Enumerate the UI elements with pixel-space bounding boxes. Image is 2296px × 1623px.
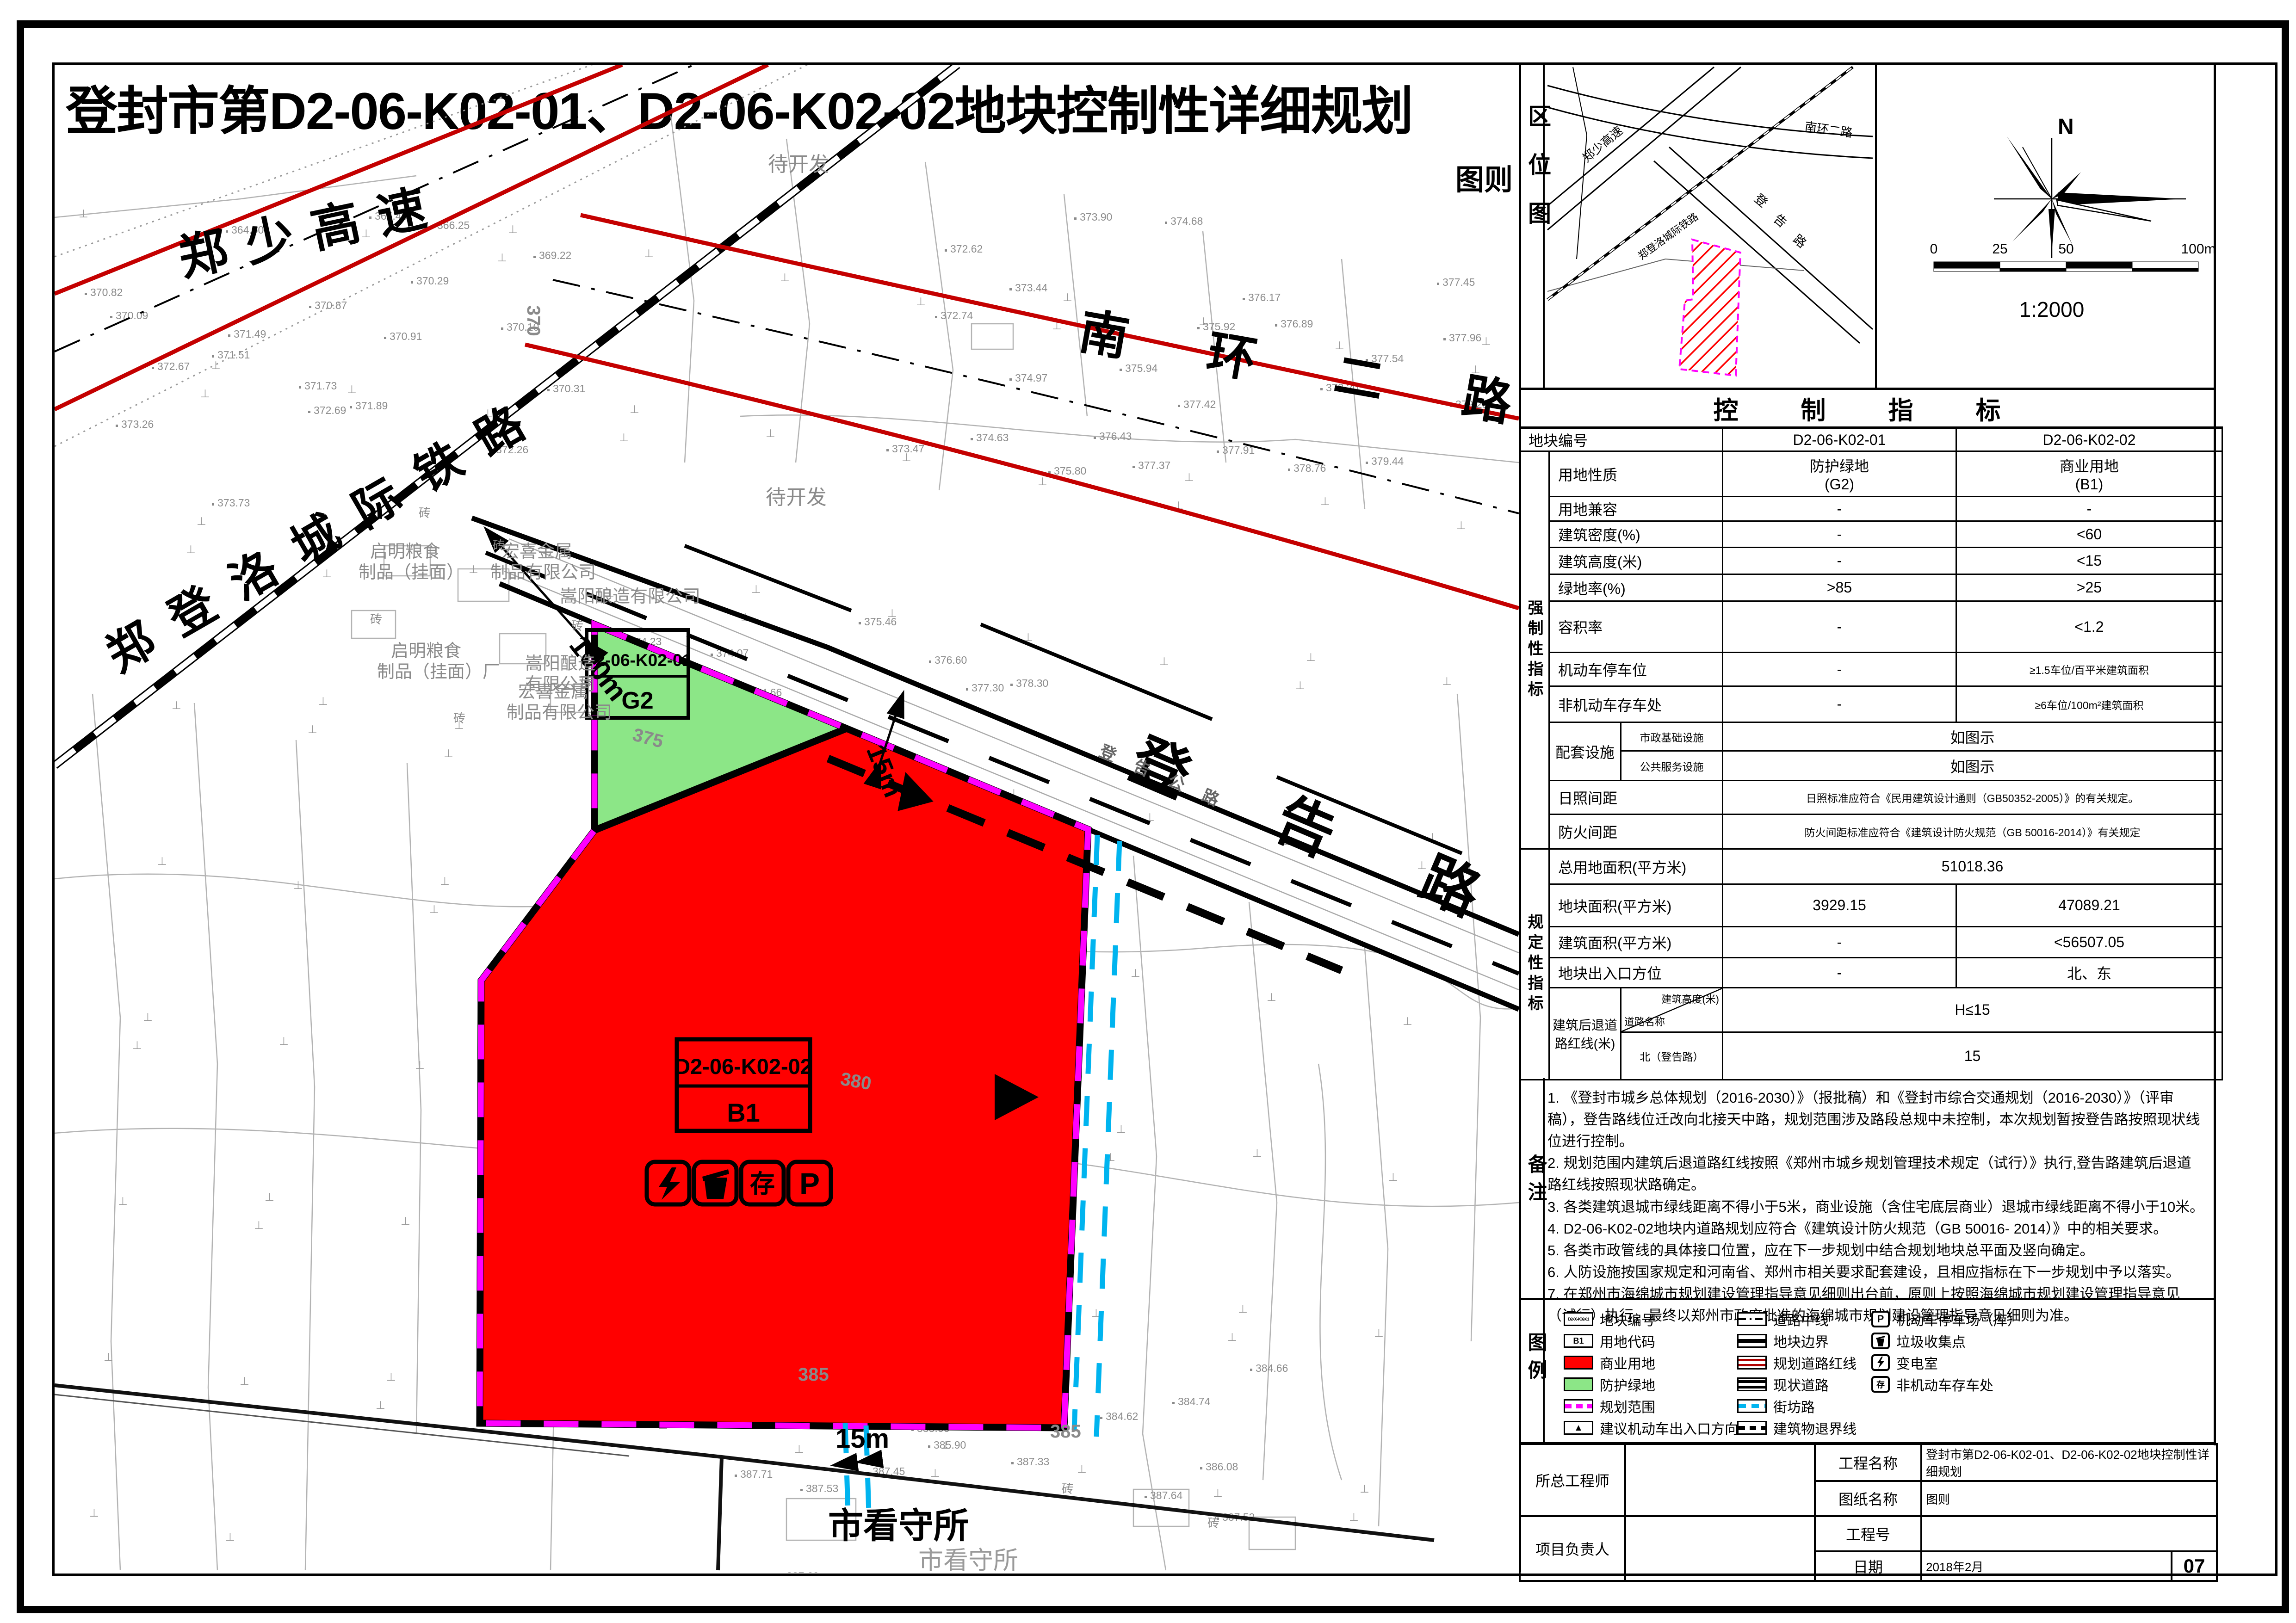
dimension-label: 15m [835,1424,889,1454]
elevation-label: 377.30 [972,682,1004,694]
elevation-label: 370.87 [315,299,347,311]
legend-item: P机动车停车场（库） [1871,1311,2021,1327]
legend-item-label: 非机动车存车处 [1896,1374,1993,1395]
entrance-direction-swatch: ▲ [1564,1421,1593,1435]
elevation-label: 387.64 [1150,1489,1183,1501]
elevation-label: 371.89 [355,400,388,412]
svg-text:⊥: ⊥ [1131,967,1140,980]
elevation-label: 384.62 [1106,1410,1138,1422]
svg-text:⊥: ⊥ [1306,651,1316,664]
road-name-label: 高 [306,195,365,258]
green-belt-swatch [1564,1377,1593,1391]
legend-item: 道路中线 [1737,1311,1857,1327]
svg-text:⊥: ⊥ [751,583,761,596]
note-item: 4. D2-06-K02-02地块内道路规划应符合《建筑设计防火规范（GB 50… [1547,1218,2204,1240]
inset-road-label: 路 [1790,232,1809,251]
svg-text:⊥: ⊥ [1388,1171,1398,1184]
legend-item-label: 机动车停车场（库） [1896,1309,2021,1329]
road-name-label: 少 [240,209,299,272]
elevation-label: 370.82 [90,286,123,298]
note-item: 3. 各类建筑退城市绿线距离不得小于5米，商业设施（含住宅底层商业）退城市绿线距… [1547,1196,2204,1218]
elevation-label: 376.89 [1281,318,1313,330]
svg-text:⊥: ⊥ [415,1059,425,1072]
legend-item: 垃圾收集点 [1871,1333,2021,1349]
brick-label: 砖 [1207,1516,1219,1530]
road-name-label: 路 [1458,369,1516,432]
svg-text:⊥: ⊥ [930,1467,940,1480]
elevation-label: 373.47 [892,443,924,455]
svg-text:⊥: ⊥ [322,568,332,580]
legend-item: D2-06-K02-01地块编号 [1564,1311,1739,1327]
elevation-label: 372.62 [950,243,983,255]
brick-label: 砖 [370,612,382,626]
notes-title: 备注 [1522,1154,1550,1210]
elevation-label: 370.29 [416,275,449,287]
location-inset-map: 南环二路郑少高速郑登洛城际铁路登告路 N 0 25 [1545,66,2214,387]
commercial-land-swatch [1564,1356,1593,1370]
elevation-label: 377.42 [1183,398,1216,410]
legend-item-label: 变电室 [1896,1352,1938,1373]
svg-text:⊥: ⊥ [279,1035,289,1048]
note-item: 6. 人防设施按国家规定和河南省、郑州市相关要求配套建设，且相应指标在下一步规划… [1547,1261,2204,1283]
bicycle-storage-icon: 存 [1871,1376,1890,1393]
svg-text:⊥: ⊥ [200,388,210,400]
elevation-label: 371.73 [304,380,337,392]
garbage-point-icon [1871,1333,1890,1349]
elevation-label: 376.60 [934,654,967,666]
place-label: 待开发 [768,153,829,176]
plot-code-2: D2-06-K02-02 [1956,428,2222,451]
brick-label: 砖 [493,538,505,552]
svg-text:100m: 100m [2181,241,2214,257]
use-code-swatch: B1 [1564,1334,1593,1348]
svg-text:⊥: ⊥ [1360,1483,1369,1495]
svg-text:⊥: ⊥ [508,223,518,236]
svg-text:⊥: ⊥ [197,515,206,528]
svg-text:⊥: ⊥ [644,247,654,260]
place-label: 制品（挂面）厂 [377,662,500,682]
legend-col-2: 道路中线地块边界规划道路红线现状道路街坊路建筑物退界线 [1737,1311,1857,1436]
brick-label: 砖 [1062,1482,1074,1496]
svg-text:⊥: ⊥ [225,1531,235,1543]
road-nanhuan-er [525,215,1519,608]
planning-scope-swatch [1564,1399,1593,1413]
svg-text:⊥: ⊥ [186,543,196,556]
svg-text:⊥: ⊥ [1267,991,1276,1004]
block-road-swatch [1737,1399,1767,1413]
road-name-label: 城 [283,506,349,574]
svg-text:⊥: ⊥ [265,1191,274,1203]
elevation-label: 374.68 [1170,215,1203,227]
project-name-value: 登封市第D2-06-K02-01、D2-06-K02-02地块控制性详细规划 [1921,1444,2217,1481]
contour-label: 385 [1050,1421,1081,1442]
legend-item-label: 防护绿地 [1600,1374,1655,1395]
parcels [480,624,1342,1428]
contour-label: 370 [523,305,544,336]
title-block: 所总工程师 工程名称 登封市第D2-06-K02-01、D2-06-K02-02… [1519,1443,2218,1582]
svg-text:⊥: ⊥ [1159,655,1169,668]
svg-text:⊥: ⊥ [1320,495,1330,508]
brick-label: 砖 [419,506,431,520]
svg-text:⊥: ⊥ [916,296,926,308]
inset-road-label: 南环二路 [1804,119,1853,140]
note-item: 5. 各类市政管线的具体接口位置，应在下一步规划中结合规划地块总平面及竖向确定。 [1547,1240,2204,1261]
north-rose-icon: N [1994,115,2186,258]
contour-label: 385 [798,1364,829,1385]
legend-item-label: 地块编号 [1600,1309,1655,1329]
elevation-label: 370.31 [553,383,585,395]
plot-number-swatch: D2-06-K02-01 [1564,1312,1593,1326]
main-map: ⊥⊥⊥⊥⊥⊥⊥⊥⊥⊥⊥⊥⊥⊥⊥⊥⊥⊥⊥⊥⊥⊥⊥⊥⊥⊥⊥⊥⊥⊥⊥⊥⊥⊥⊥⊥⊥⊥⊥⊥… [55,65,1519,1573]
elevation-label: 371.49 [234,328,266,340]
svg-text:0: 0 [1930,241,1938,257]
legend-item: 地块边界 [1737,1333,1857,1349]
elevation-label: 387.71 [740,1468,773,1480]
legend-col-1: D2-06-K02-01地块编号B1用地代码商业用地防护绿地规划范围▲建议机动车… [1564,1311,1739,1436]
elevation-label: 377.37 [1138,459,1170,471]
elevation-label: 369.22 [539,249,571,261]
legend-item-label: 街坊路 [1773,1396,1815,1416]
elevation-label: 387.69 [786,1570,819,1573]
elevation-label: 384.74 [1178,1395,1211,1407]
svg-text:⊥: ⊥ [1063,291,1072,304]
project-name-label: 工程名称 [1815,1444,1921,1481]
road-name-label: 郑 [98,614,164,682]
legend-item: B1用地代码 [1564,1333,1739,1349]
place-label: 制品有限公司 [490,563,596,582]
svg-text:⊥: ⊥ [318,695,328,708]
road-name-label: 郑 [174,223,233,286]
elevation-label: 372.74 [941,309,973,321]
place-label: 嵩阳酿造有限公司 [560,587,700,606]
svg-text:P: P [799,1166,820,1201]
svg-text:⊥: ⊥ [172,699,181,712]
svg-text:⊥: ⊥ [1252,1147,1262,1160]
place-label: 制品有限公司 [507,703,612,722]
elevation-label: 375.46 [864,616,897,628]
building-setback-swatch [1737,1421,1767,1435]
svg-text:⊥: ⊥ [780,272,790,284]
svg-text:⊥: ⊥ [1116,1123,1126,1135]
legend-item: 现状道路 [1737,1376,1857,1392]
control-indicator-table: 控 制 指 标 地块编号 D2-06-K02-01 D2-06-K02-02 强… [1519,389,2223,1080]
elevation-label: 387.53 [806,1482,838,1494]
road-centerline-swatch [1737,1312,1767,1326]
legend-item-label: 建议机动车出入口方向 [1600,1418,1739,1438]
road-name-label: 环 [1203,326,1261,388]
legend-item: ▲建议机动车出入口方向 [1564,1420,1739,1436]
legend-title: 图例 [1522,1332,1550,1388]
elevation-label: 385.90 [934,1439,966,1451]
svg-text:⊥: ⊥ [429,903,439,916]
elevation-label: 378.30 [1016,677,1048,689]
svg-text:25: 25 [1992,241,2007,257]
place-label: 制品（挂面） [359,563,464,582]
svg-text:⊥: ⊥ [211,359,221,372]
road-name-label: 南 [1075,304,1133,366]
group-mandatory: 强制性指标 [1523,599,1546,701]
road-name-label: 路 [1199,786,1222,810]
svg-text:⊥: ⊥ [1417,859,1427,872]
legend-item: 防护绿地 [1564,1376,1739,1392]
trash-icon [1875,1335,1886,1347]
date-value: 2018年2月 [1921,1551,2172,1581]
highway-zhengshao [55,65,807,446]
road-name-label: 洛 [221,542,287,610]
elevation-label: 387.33 [1017,1456,1049,1468]
notes-list: 1. 《登封市城乡总体规划（2016-2030）》（报批稿）和《登封市综合交通规… [1547,1087,2204,1327]
legend-item: 建筑物退界线 [1737,1420,1857,1436]
place-label: 待开发 [766,486,827,509]
svg-text:⊥: ⊥ [157,855,167,868]
svg-text:⊥: ⊥ [79,208,88,220]
sheet-name-label: 图纸名称 [1815,1481,1921,1516]
elevation-label: 379.44 [1371,455,1404,467]
elevation-label: 372.67 [157,360,190,372]
group-regulatory: 规定性指标 [1523,913,1546,1015]
lightning-icon [1875,1357,1886,1369]
parcel2-use: B1 [727,1098,760,1127]
svg-text:⊥: ⊥ [386,1371,396,1383]
brick-label: 砖 [453,711,465,725]
inset-road-label: 郑登洛城际铁路 [1636,210,1700,262]
svg-text:⊥: ⊥ [254,1219,264,1232]
elevation-label: 376.17 [1248,291,1281,303]
svg-text:⊥: ⊥ [794,1443,804,1456]
plot-code-1: D2-06-K02-01 [1723,428,1956,451]
note-item: 2. 规划范围内建筑后退道路红线按照《郑州市城乡规划管理技术规定（试行）》执行,… [1547,1152,2204,1196]
brick-label: 砖 [571,619,583,633]
elevation-label: 373.73 [217,497,250,509]
road-name-label: 际 [344,469,410,537]
svg-text:⊥: ⊥ [1184,471,1194,484]
project-manager-label: 项目负责人 [1520,1516,1625,1581]
elevation-label: 370.91 [390,330,422,342]
svg-text:⊥: ⊥ [766,427,775,440]
svg-text:⊥: ⊥ [1238,1303,1248,1315]
svg-text:⊥: ⊥ [1349,1511,1359,1524]
svg-text:⊥: ⊥ [308,723,317,736]
svg-text:⊥: ⊥ [444,747,453,760]
svg-text:⊥: ⊥ [497,252,507,264]
project-no-value [1921,1516,2217,1551]
legend-item-label: 用地代码 [1600,1331,1655,1351]
svg-text:⊥: ⊥ [440,875,450,888]
elevation-label: 384.66 [1256,1362,1288,1374]
chief-engineer-label: 所总工程师 [1520,1444,1625,1516]
scale-ratio: 1:2000 [2019,297,2085,321]
table-header: 控 制 指 标 [1520,389,2222,428]
legend-item-label: 建筑物退界线 [1773,1418,1857,1438]
svg-text:⊥: ⊥ [143,1011,153,1024]
legend-item-label: 垃圾收集点 [1896,1331,1966,1351]
svg-text:⊥: ⊥ [1456,519,1466,532]
place-label: 市看守所 [918,1547,1018,1573]
legend-item: 商业用地 [1564,1355,1739,1370]
brick-label: 砖 [581,674,593,688]
svg-text:⊥: ⊥ [1077,1463,1087,1475]
chief-engineer-signature [1625,1444,1815,1516]
svg-text:⊥: ⊥ [1481,335,1491,348]
place-label: 启明粮食 [370,542,440,562]
elevation-label: 373.44 [1015,282,1048,294]
svg-text:⊥: ⊥ [118,1195,128,1208]
legend-item-label: 商业用地 [1600,1352,1655,1373]
elevation-label: 373.90 [1080,211,1112,223]
svg-text:存: 存 [750,1170,775,1198]
svg-text:⊥: ⊥ [1038,475,1047,488]
sheet-number: 07 [2172,1551,2217,1581]
parcel-boundary-swatch [1737,1334,1767,1348]
road-name-label: 铁 [406,433,472,501]
north-label: N [2058,115,2074,139]
project-no-label: 工程号 [1815,1516,1921,1551]
existing-road-swatch [1737,1377,1767,1391]
svg-text:⊥: ⊥ [469,563,478,576]
svg-text:⊥: ⊥ [347,383,357,396]
place-label: 嵩阳酿造 [525,654,595,673]
svg-text:⊥: ⊥ [293,879,303,892]
svg-text:⊥: ⊥ [1442,675,1452,688]
legend-item: 变电室 [1871,1355,2021,1370]
svg-text:⊥: ⊥ [1403,1015,1412,1028]
legend-item-label: 地块边界 [1773,1331,1829,1351]
svg-text:⊥: ⊥ [1374,1327,1384,1339]
elevation-label: 376.43 [1099,430,1132,442]
legend-item: 街坊路 [1737,1398,1857,1414]
elevation-label: 374.63 [976,432,1009,444]
elevation-label: 377.45 [1442,276,1475,288]
svg-text:⊥: ⊥ [376,1399,385,1412]
elevation-label: 386.08 [1206,1461,1238,1473]
project-manager-signature [1625,1516,1815,1581]
planned-road-redline-swatch [1737,1356,1767,1370]
svg-text:⊥: ⊥ [89,1507,99,1519]
place-label: 启明粮食 [391,642,461,661]
inset-road-label: 告 [1771,212,1789,230]
substation-icon [1871,1354,1890,1371]
elevation-label: 377.96 [1449,332,1481,344]
place-label: 宏喜金属 [502,542,572,562]
legend-item-label: 道路中线 [1773,1309,1829,1329]
date-label: 日期 [1815,1551,1921,1581]
inset-site-parcel [1679,240,1740,376]
svg-text:50: 50 [2058,241,2073,257]
elevation-label: 375.80 [1054,465,1086,477]
svg-text:⊥: ⊥ [1295,679,1305,692]
svg-text:⊥: ⊥ [630,403,639,416]
parking-icon: P [1871,1311,1890,1327]
svg-text:⊥: ⊥ [240,1375,249,1388]
inset-road-label: 登 [1751,191,1770,210]
legend-item: 规划道路红线 [1737,1355,1857,1370]
svg-text:⊥: ⊥ [1213,1487,1223,1500]
legend-item: 存非机动车存车处 [1871,1376,2021,1392]
place-label: 市看守所 [828,1506,969,1546]
road-name-label: 速 [372,181,431,244]
svg-text:⊥: ⊥ [619,432,629,444]
legend-item-label: 规划范围 [1600,1396,1655,1416]
svg-text:⊥: ⊥ [104,1351,113,1364]
svg-text:⊥: ⊥ [401,1215,410,1228]
parcel2-code: D2-06-K02-02 [675,1054,812,1079]
note-item: 1. 《登封市城乡总体规划（2016-2030）》（报批稿）和《登封市综合交通规… [1547,1087,2204,1152]
elevation-label: 375.94 [1125,362,1158,374]
svg-text:⊥: ⊥ [132,1039,142,1052]
sheet-name-value: 图则 [1921,1481,2217,1516]
road-name-label: 二 [1331,347,1388,410]
elevation-label: 373.26 [121,418,154,430]
legend-col-3: P机动车停车场（库）垃圾收集点变电室存非机动车存车处 [1871,1311,2021,1392]
legend-item-label: 规划道路红线 [1773,1352,1857,1373]
legend-item-label: 现状道路 [1773,1374,1829,1395]
elevation-label: 374.97 [1015,372,1047,384]
elevation-label: 372.69 [314,404,346,416]
plan-sheet: 登封市第D2-06-K02-01、D2-06-K02-02地块控制性详细规划 图… [0,0,2296,1623]
scale-bar: 0 25 50 100m 1:2000 [1930,241,2214,321]
inset-road-label: 郑少高速 [1580,123,1626,165]
legend-item: 规划范围 [1564,1398,1739,1414]
svg-text:⊥: ⊥ [1227,1331,1237,1344]
